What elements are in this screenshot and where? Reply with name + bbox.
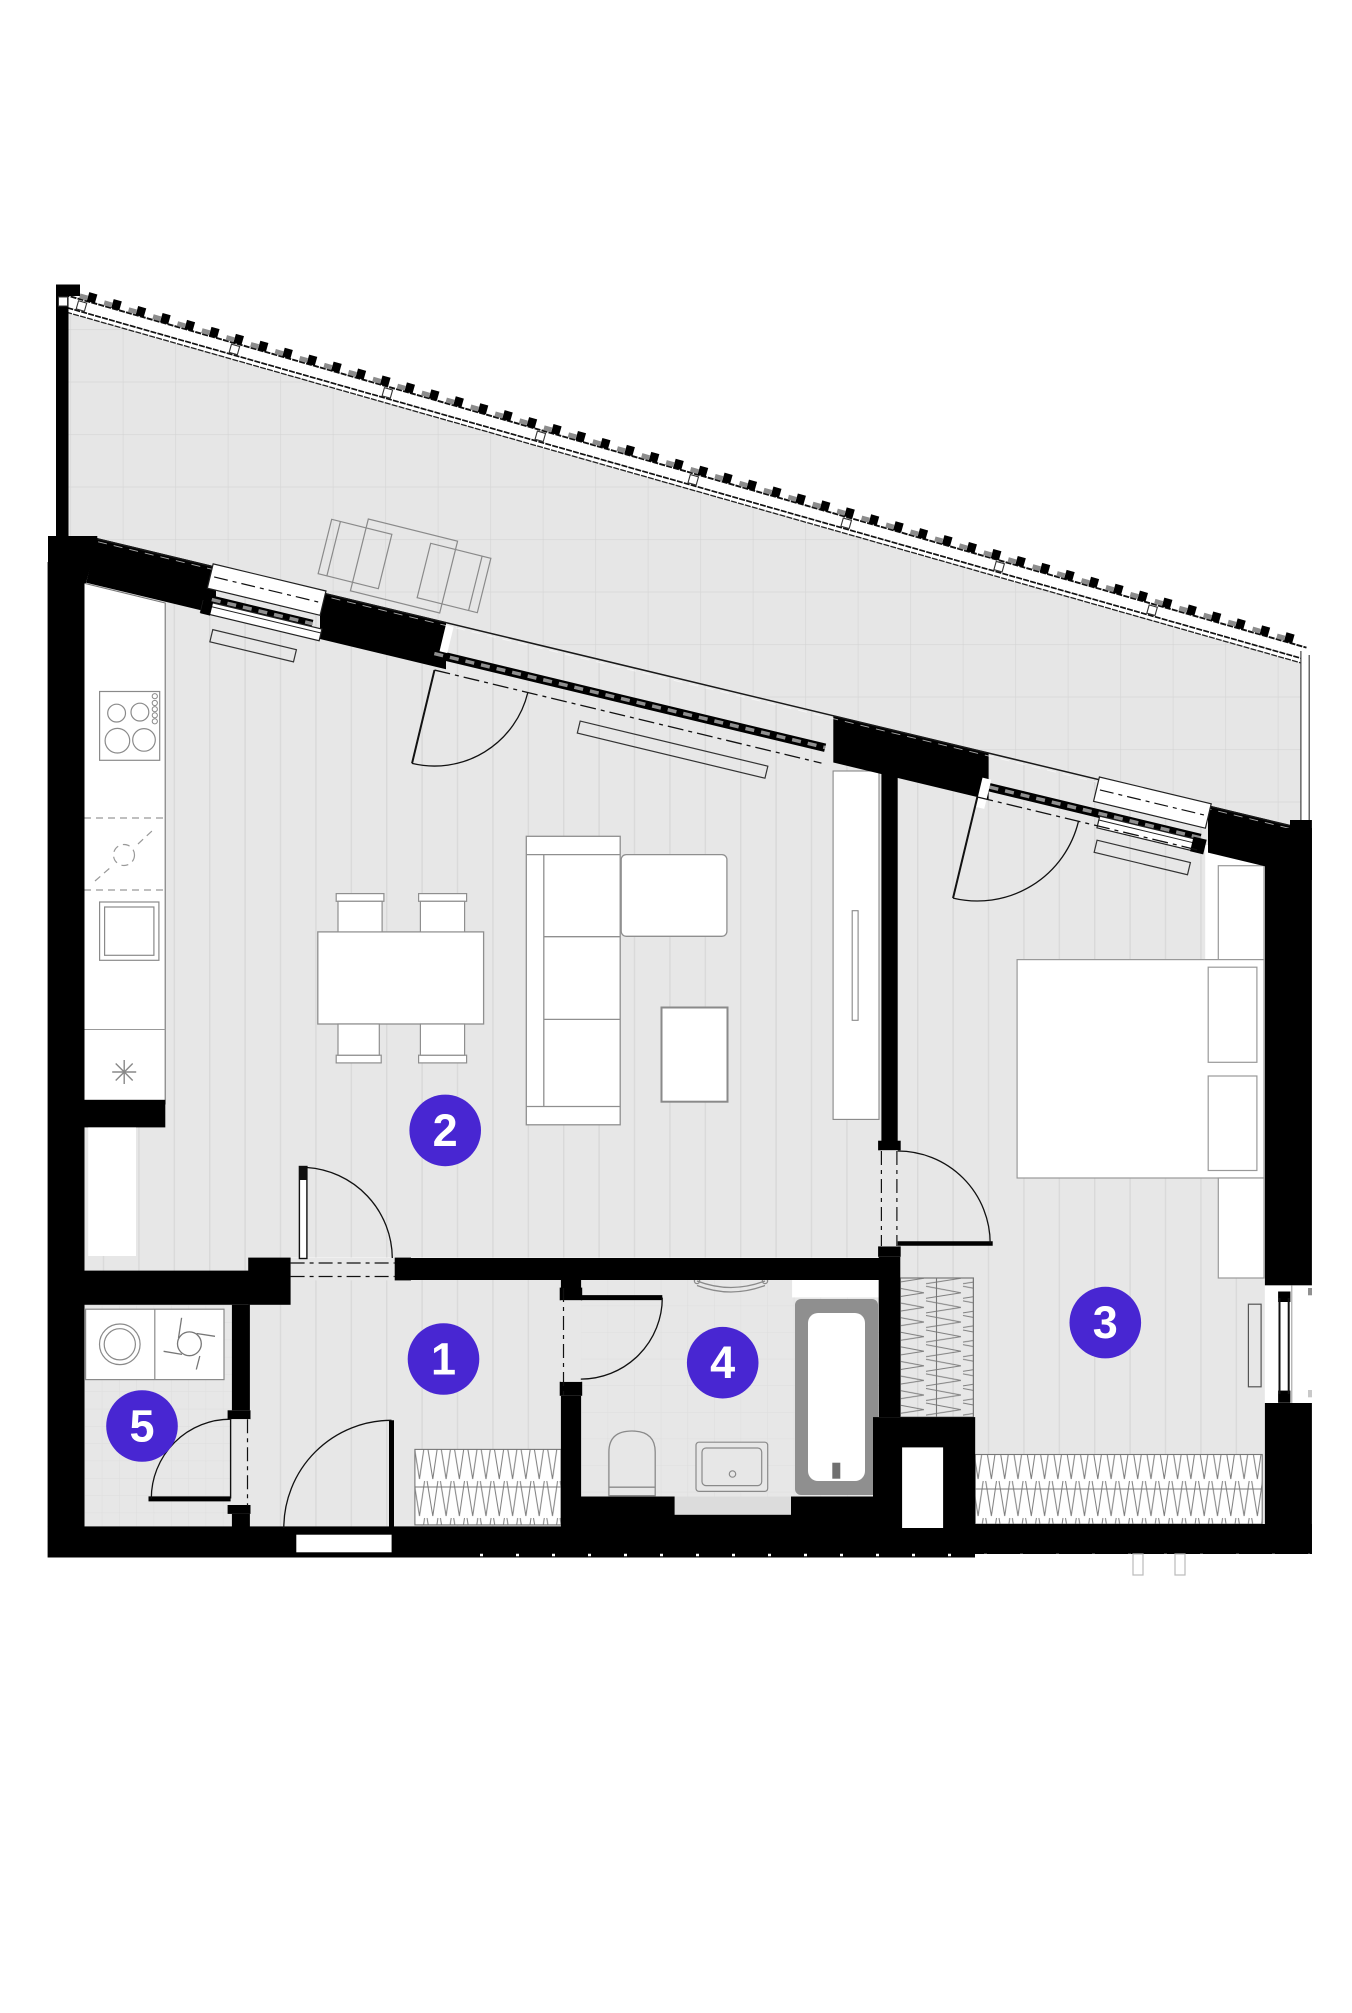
svg-text:3: 3: [1093, 1297, 1118, 1348]
svg-text:5: 5: [129, 1401, 154, 1452]
svg-text:1: 1: [431, 1334, 456, 1385]
svg-text:2: 2: [433, 1105, 458, 1156]
svg-text:4: 4: [710, 1337, 735, 1388]
